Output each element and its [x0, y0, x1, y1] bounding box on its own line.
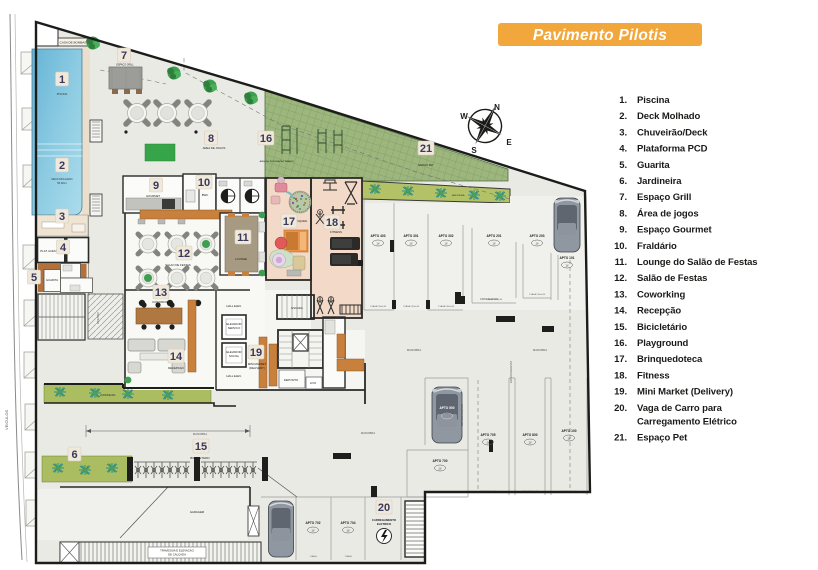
svg-text:11: 11	[237, 232, 249, 244]
svg-text:DEPOSITO: DEPOSITO	[284, 378, 299, 382]
svg-text:1 VAGA 2,30x4,50: 1 VAGA 2,30x4,50	[529, 293, 546, 296]
svg-text:DE CALCADA: DE CALCADA	[168, 553, 186, 557]
svg-text:1V: 1V	[566, 265, 569, 268]
svg-text:BWC: BWC	[202, 193, 209, 197]
svg-text:Jardineira: Jardineira	[637, 176, 682, 187]
svg-text:Espaço Grill: Espaço Grill	[637, 192, 691, 203]
svg-text:HALL ELEV.: HALL ELEV.	[226, 374, 242, 378]
svg-text:1V: 1V	[536, 243, 539, 246]
svg-text:10: 10	[198, 177, 210, 189]
svg-text:SERVICO: SERVICO	[228, 326, 241, 330]
svg-text:20.: 20.	[614, 403, 627, 414]
svg-text:18.: 18.	[614, 370, 627, 381]
svg-text:LIXO: LIXO	[310, 381, 317, 385]
svg-text:9.: 9.	[619, 225, 627, 236]
svg-text:1 VAGA: 1 VAGA	[344, 555, 352, 558]
svg-text:7: 7	[121, 50, 127, 62]
svg-text:Fraldário: Fraldário	[637, 241, 677, 252]
svg-text:Bicicletário: Bicicletário	[637, 322, 687, 333]
svg-text:DECK MOLHADO: DECK MOLHADO	[51, 177, 72, 181]
svg-text:ELETRICO: ELETRICO	[377, 522, 392, 526]
svg-text:LOUNGE: LOUNGE	[235, 257, 247, 261]
svg-text:ESPACO PET: ESPACO PET	[418, 164, 434, 167]
svg-text:15: 15	[195, 441, 207, 453]
svg-text:11.: 11.	[615, 257, 627, 268]
svg-text:ESTACIONAMENTO: ESTACIONAMENTO	[461, 404, 464, 426]
svg-text:13: 13	[155, 287, 167, 299]
svg-text:Vaga de Carro para: Vaga de Carro para	[637, 403, 723, 414]
svg-text:GARAGEM: GARAGEM	[190, 510, 205, 514]
svg-text:GUARITA: GUARITA	[46, 278, 58, 282]
svg-text:JARDINEIRA: JARDINEIRA	[451, 194, 465, 197]
svg-text:3.: 3.	[619, 127, 627, 138]
svg-text:Lounge do Salão de Festas: Lounge do Salão de Festas	[637, 257, 758, 268]
svg-text:6.: 6.	[619, 176, 627, 187]
svg-text:Chuveirão/Deck: Chuveirão/Deck	[637, 127, 708, 138]
svg-text:APTO 500: APTO 500	[439, 406, 454, 410]
svg-text:APTO 101: APTO 101	[559, 256, 574, 260]
svg-text:APTO 800: APTO 800	[522, 433, 537, 437]
svg-text:Carregamento Elétrico: Carregamento Elétrico	[637, 416, 737, 427]
svg-text:APTO 203: APTO 203	[529, 234, 544, 238]
svg-text:1: 1	[59, 74, 65, 86]
svg-text:MANOBRA: MANOBRA	[193, 432, 207, 436]
svg-text:3: 3	[59, 211, 65, 223]
svg-text:5: 5	[31, 272, 37, 284]
svg-text:APTO 100: APTO 100	[561, 429, 576, 433]
svg-text:GOURMET: GOURMET	[146, 194, 161, 198]
svg-text:1V: 1V	[439, 468, 442, 471]
svg-text:19.: 19.	[614, 387, 627, 398]
svg-text:8.: 8.	[619, 208, 627, 219]
svg-text:APTO 705: APTO 705	[480, 433, 495, 437]
svg-text:Piscina: Piscina	[637, 95, 670, 106]
svg-text:HALL ELEV.: HALL ELEV.	[226, 304, 242, 308]
svg-text:1V: 1V	[347, 530, 350, 533]
svg-text:VEICULOS: VEICULOS	[4, 409, 9, 430]
svg-text:1.: 1.	[619, 95, 627, 106]
svg-text:APTO 403: APTO 403	[370, 234, 385, 238]
svg-text:18: 18	[326, 217, 338, 229]
svg-text:Mini Market (Delivery): Mini Market (Delivery)	[637, 387, 733, 398]
svg-text:2: 2	[59, 160, 65, 172]
svg-text:APTO 702: APTO 702	[305, 521, 320, 525]
svg-text:4: 4	[60, 242, 67, 254]
svg-text:Guarita: Guarita	[637, 160, 670, 171]
svg-text:1V: 1V	[568, 438, 571, 441]
svg-text:FITNESS: FITNESS	[330, 230, 342, 234]
svg-text:4.: 4.	[619, 144, 627, 155]
svg-text:BICICLETARIO: BICICLETARIO	[190, 456, 210, 460]
svg-text:20: 20	[378, 502, 390, 514]
svg-text:Fitness: Fitness	[637, 370, 670, 381]
svg-text:17.: 17.	[614, 354, 627, 365]
svg-text:1 VAGA: 1 VAGA	[309, 555, 317, 558]
svg-text:ESTACIONAMENTO: ESTACIONAMENTO	[510, 361, 513, 383]
svg-text:ACESSO: ACESSO	[96, 311, 100, 323]
svg-text:16.: 16.	[614, 338, 627, 349]
svg-text:APTO 704: APTO 704	[340, 521, 355, 525]
svg-text:1 VAGA 2,30x4,50: 1 VAGA 2,30x4,50	[403, 305, 420, 308]
svg-text:CIRCULACAO: CIRCULACAO	[480, 297, 499, 301]
svg-text:SALAO DE FESTAS: SALAO DE FESTAS	[165, 263, 191, 267]
svg-text:1V: 1V	[312, 530, 315, 533]
svg-text:1V: 1V	[493, 243, 496, 246]
svg-text:1 VAGA 2,30x4,50: 1 VAGA 2,30x4,50	[438, 305, 455, 308]
svg-text:6: 6	[71, 449, 77, 461]
svg-text:5.: 5.	[619, 160, 627, 171]
svg-text:N: N	[494, 103, 500, 112]
svg-text:13.: 13.	[614, 289, 627, 300]
svg-text:AREA DE INTEGRACAO INFANTIL: AREA DE INTEGRACAO INFANTIL	[260, 160, 296, 163]
svg-text:APTO 201: APTO 201	[486, 234, 501, 238]
svg-text:14.: 14.	[614, 306, 627, 317]
svg-text:12: 12	[178, 248, 190, 260]
svg-text:ESPACO GRILL: ESPACO GRILL	[116, 64, 134, 67]
svg-text:17: 17	[283, 216, 295, 228]
svg-text:Área de jogos: Área de jogos	[637, 208, 699, 219]
svg-text:19: 19	[250, 347, 262, 359]
svg-text:21.: 21.	[614, 433, 627, 444]
svg-text:AREA DE JOGOS: AREA DE JOGOS	[203, 146, 226, 150]
svg-text:MANOBRA: MANOBRA	[407, 348, 421, 352]
svg-text:RECEPCAO: RECEPCAO	[168, 366, 185, 370]
svg-text:Recepção: Recepção	[637, 306, 681, 317]
svg-text:10.: 10.	[614, 241, 627, 252]
svg-text:Espaço Pet: Espaço Pet	[637, 433, 688, 444]
svg-text:9: 9	[153, 180, 159, 192]
svg-text:1V: 1V	[529, 442, 532, 445]
svg-text:Coworking: Coworking	[637, 289, 685, 300]
svg-text:COWORKING: COWORKING	[152, 300, 170, 304]
svg-text:APTO 302: APTO 302	[438, 234, 453, 238]
svg-text:8: 8	[208, 133, 214, 145]
svg-text:1V: 1V	[377, 243, 380, 246]
svg-text:7.: 7.	[619, 192, 627, 203]
svg-text:E: E	[506, 138, 512, 147]
svg-text:1V: 1V	[445, 243, 448, 246]
svg-text:15.: 15.	[614, 322, 627, 333]
svg-text:14: 14	[170, 351, 183, 363]
svg-text:16: 16	[260, 133, 272, 145]
svg-text:Espaço Gourmet: Espaço Gourmet	[637, 225, 713, 236]
svg-text:21: 21	[420, 143, 432, 155]
svg-text:Playground: Playground	[637, 338, 689, 349]
svg-text:APTO 301: APTO 301	[403, 234, 418, 238]
svg-text:APTO 700: APTO 700	[432, 459, 447, 463]
svg-text:Pavimento Pilotis: Pavimento Pilotis	[533, 27, 667, 44]
svg-text:2.: 2.	[619, 111, 627, 122]
svg-text:S: S	[471, 146, 477, 155]
svg-text:MANOBRA: MANOBRA	[533, 348, 547, 352]
svg-text:SOCIAL: SOCIAL	[229, 354, 240, 358]
svg-text:1V: 1V	[487, 442, 490, 445]
svg-text:(DELIVERY): (DELIVERY)	[249, 366, 265, 370]
svg-text:1V: 1V	[410, 243, 413, 246]
svg-text:Plataforma PCD: Plataforma PCD	[637, 144, 708, 155]
svg-text:Brinquedoteca: Brinquedoteca	[637, 354, 703, 365]
svg-text:12.: 12.	[614, 273, 627, 284]
svg-text:MANOBRA: MANOBRA	[361, 431, 375, 435]
svg-text:Deck Molhado: Deck Molhado	[637, 111, 700, 122]
svg-text:PISCINA: PISCINA	[57, 92, 68, 96]
svg-text:Salão de Festas: Salão de Festas	[637, 273, 707, 284]
svg-text:55,00m²: 55,00m²	[57, 181, 67, 185]
svg-text:W: W	[460, 112, 468, 121]
svg-text:CASA DE BOMBAS: CASA DE BOMBAS	[60, 41, 87, 45]
svg-text:JARDINEIRA: JARDINEIRA	[100, 393, 116, 397]
svg-text:ESCADA: ESCADA	[291, 306, 303, 310]
svg-text:1 VAGA 2,30x4,50: 1 VAGA 2,30x4,50	[370, 305, 387, 308]
